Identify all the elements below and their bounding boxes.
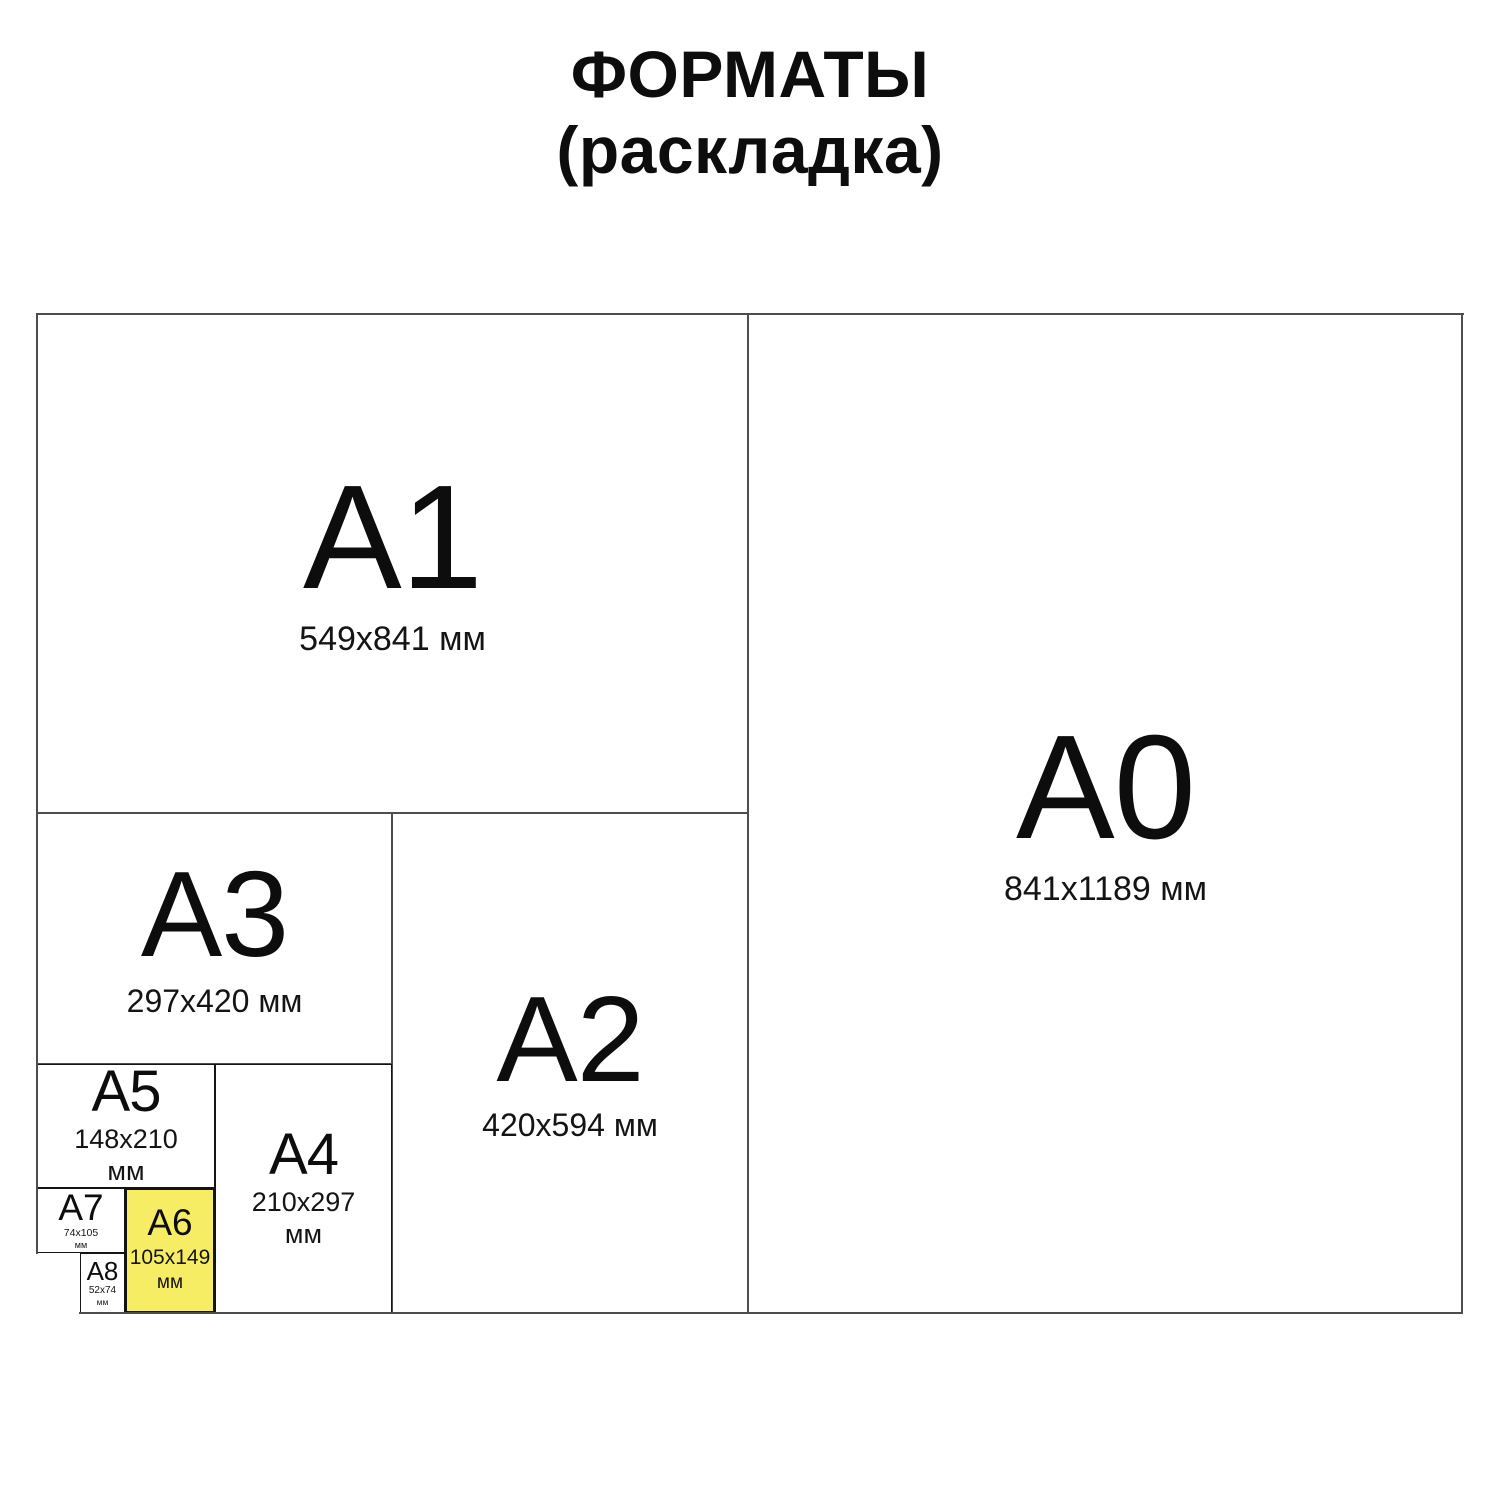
format-box-a0: A0 841x1189 мм (748, 314, 1463, 1313)
format-box-a6-highlighted: A6 105x149 мм (125, 1188, 215, 1313)
format-label-a6: A6 (147, 1205, 192, 1240)
format-dims-unit-a7: мм (64, 1240, 98, 1251)
format-label-a4: A4 (269, 1127, 338, 1182)
format-box-a3: A3 297x420 мм (37, 813, 392, 1064)
format-label-a1: A1 (303, 468, 482, 609)
formats-diagram-page: ФОРМАТЫ (раскладка) A1 549x841 мм A0 841… (0, 0, 1500, 1500)
format-dims-value-a4: 210x297 (252, 1187, 356, 1219)
format-dims-value-a5: 148x210 (74, 1124, 178, 1156)
format-dims-a2: 420x594 мм (482, 1107, 658, 1144)
title-line-2: (раскладка) (0, 112, 1500, 188)
format-dims-a4: 210x297 мм (252, 1187, 356, 1251)
format-box-a8: A8 52x74 мм (80, 1253, 125, 1313)
format-box-a5: A5 148x210 мм (37, 1064, 215, 1188)
format-dims-unit-a5: мм (74, 1156, 178, 1188)
outer-border-left (36, 313, 38, 1254)
format-label-a8: A8 (87, 1259, 119, 1284)
format-dims-a5: 148x210 мм (74, 1124, 178, 1188)
format-dims-a6: 105x149 мм (130, 1244, 211, 1296)
outer-border-bottom (79, 1312, 1463, 1314)
format-label-a7: A7 (58, 1190, 103, 1225)
format-dims-unit-a8: мм (89, 1297, 116, 1307)
format-label-a5: A5 (92, 1064, 161, 1119)
format-box-a1: A1 549x841 мм (37, 314, 748, 813)
format-dims-a3: 297x420 мм (127, 983, 303, 1020)
format-dims-unit-a4: мм (252, 1219, 356, 1251)
format-box-a2: A2 420x594 мм (392, 813, 748, 1313)
format-dims-a0: 841x1189 мм (1004, 870, 1207, 909)
format-dims-value-a8: 52x74 (89, 1285, 116, 1297)
format-box-a7: A7 74x105 мм (37, 1188, 125, 1253)
title-line-1: ФОРМАТЫ (0, 36, 1500, 112)
outer-border-right (1461, 313, 1463, 1314)
format-label-a0: A0 (1016, 718, 1195, 859)
format-label-a3: A3 (141, 857, 288, 973)
format-dims-value-a6: 105x149 (130, 1244, 211, 1271)
format-dims-a1: 549x841 мм (299, 620, 486, 659)
outer-border-top (36, 313, 1464, 315)
format-label-a2: A2 (496, 982, 643, 1098)
format-dims-unit-a6: мм (130, 1271, 211, 1296)
format-dims-a7: 74x105 мм (64, 1227, 98, 1251)
page-title: ФОРМАТЫ (раскладка) (0, 36, 1500, 188)
format-dims-a8: 52x74 мм (89, 1285, 116, 1307)
format-dims-value-a7: 74x105 (64, 1227, 98, 1240)
format-box-a4: A4 210x297 мм (215, 1064, 392, 1313)
